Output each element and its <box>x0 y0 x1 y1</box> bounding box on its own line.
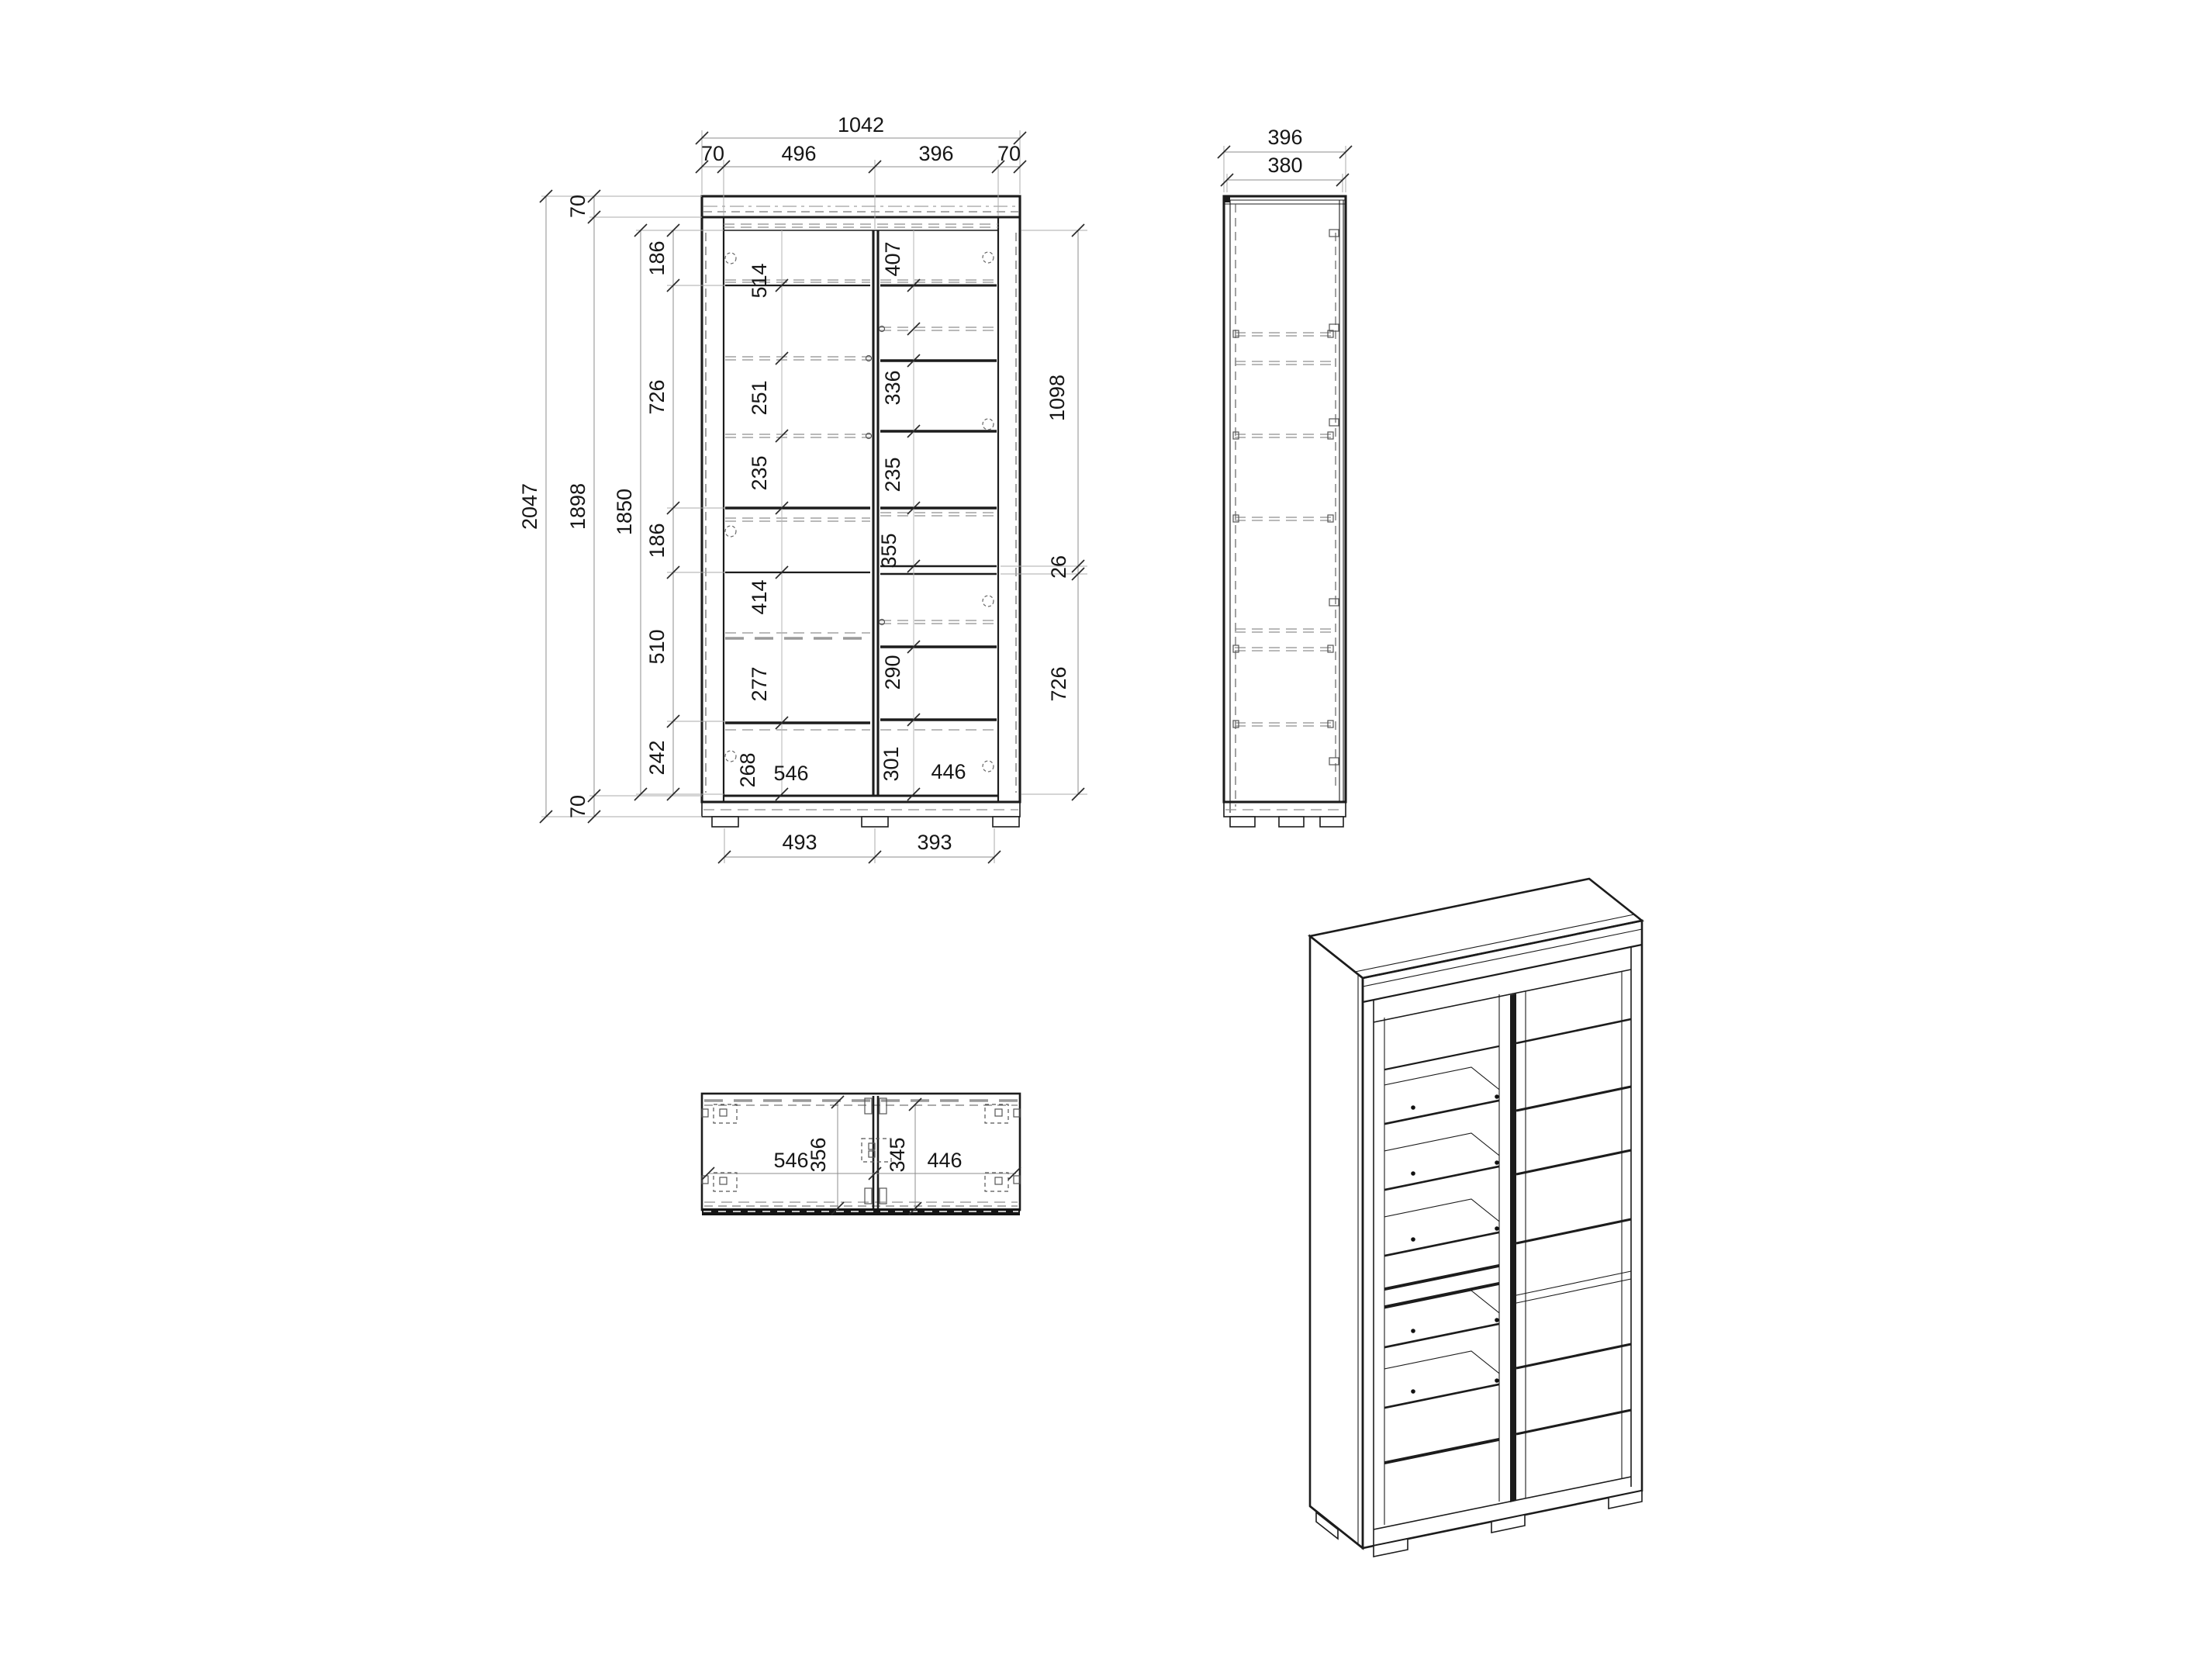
dim-left-cell: 414 <box>748 579 771 614</box>
dim-width-part: 496 <box>781 142 816 165</box>
dim-right-bottom-depth: 301 <box>880 746 903 781</box>
corner-connector-icons <box>702 1098 1020 1204</box>
dim-right-cell: 355 <box>877 533 900 568</box>
dim-chain: 186 <box>645 240 669 275</box>
dim-width-part: 70 <box>997 142 1021 165</box>
iso-left-shelves <box>1335 1044 1510 1465</box>
dim-right-cell: 290 <box>881 655 904 690</box>
side-cabinet-structure <box>1224 196 1346 827</box>
dim-top-right-width: 446 <box>927 1149 962 1172</box>
dim-left-cell: 235 <box>748 455 771 490</box>
side-shelf-lines <box>1233 330 1337 728</box>
dim-left-cell: 251 <box>748 380 771 415</box>
top-dimensions: 546 356 345 446 <box>702 1096 1021 1215</box>
dim-depth-total: 396 <box>1267 126 1302 149</box>
dim-chain: 186 <box>645 523 669 558</box>
iso-view <box>1310 879 1642 1557</box>
dim-left-cell: 514 <box>748 263 771 298</box>
dim-right-chain: 1098 <box>1046 375 1069 421</box>
dim-chain: 242 <box>645 740 669 775</box>
dim-right-cell: 235 <box>881 457 904 492</box>
dim-height-interior: 1850 <box>613 489 636 535</box>
top-view: 546 356 345 446 <box>702 1094 1021 1215</box>
dim-left-cell: 277 <box>748 666 771 701</box>
dim-right-chain: 26 <box>1047 555 1070 579</box>
dim-left-bottom-depth: 268 <box>736 752 759 787</box>
side-view: 396 380 <box>1218 126 1352 827</box>
technical-drawing-sheet: 1042 70 496 396 70 2047 70 1898 70 1850 … <box>0 0 2212 1659</box>
dim-feet: 393 <box>917 831 952 854</box>
dim-feet: 493 <box>782 831 817 854</box>
dim-right-cell: 336 <box>881 370 904 405</box>
dim-depth-body: 380 <box>1267 154 1302 177</box>
dim-width-total: 1042 <box>838 113 884 137</box>
front-dimensions: 1042 70 496 396 70 2047 70 1898 70 1850 … <box>518 113 1087 863</box>
dim-top-left-width: 546 <box>773 1149 808 1172</box>
front-view: 1042 70 496 396 70 2047 70 1898 70 1850 … <box>518 113 1087 863</box>
dim-top-right-depth: 345 <box>886 1137 909 1172</box>
side-connector-icons <box>1329 230 1339 765</box>
dim-right-bottom-width: 446 <box>931 760 966 783</box>
dim-height-total: 2047 <box>518 483 541 530</box>
dim-height-part: 70 <box>566 795 589 818</box>
dim-height-part: 70 <box>566 195 589 218</box>
dim-right-cell: 407 <box>881 241 904 276</box>
dim-chain: 726 <box>645 379 669 414</box>
dim-width-part: 70 <box>701 142 724 165</box>
dim-right-chain: 726 <box>1047 666 1070 701</box>
iso-right-column <box>1516 971 1631 1498</box>
dim-left-bottom-width: 546 <box>773 762 808 785</box>
dim-chain: 510 <box>645 629 669 664</box>
side-dimensions: 396 380 <box>1218 126 1352 192</box>
dim-top-left-depth: 356 <box>807 1137 830 1172</box>
top-cabinet-structure <box>702 1094 1020 1215</box>
dim-height-part: 1898 <box>566 483 589 530</box>
dim-width-part: 396 <box>918 142 953 165</box>
